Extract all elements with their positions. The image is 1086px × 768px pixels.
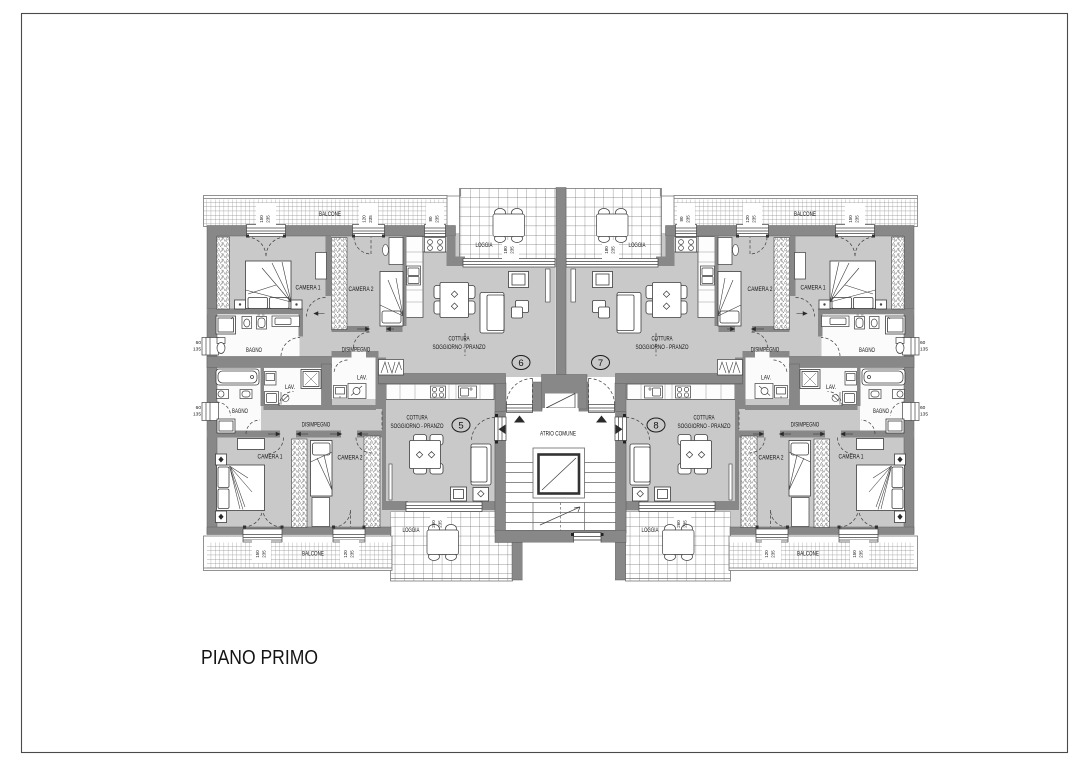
svg-text:COTTURA: COTTURA — [694, 415, 716, 422]
svg-text:CAMERA 1: CAMERA 1 — [258, 454, 283, 461]
svg-text:COTTURA: COTTURA — [407, 415, 429, 422]
svg-text:180: 180 — [503, 246, 509, 254]
svg-text:BAGNO: BAGNO — [873, 408, 889, 415]
svg-text:COTTURA: COTTURA — [652, 336, 674, 343]
svg-text:7: 7 — [598, 358, 603, 369]
svg-text:BAGNO: BAGNO — [246, 347, 262, 354]
svg-text:150: 150 — [259, 215, 265, 223]
svg-text:LOGGIA: LOGGIA — [403, 527, 421, 534]
svg-text:120: 120 — [343, 550, 349, 558]
svg-text:LOGGIA: LOGGIA — [642, 527, 660, 534]
svg-text:150: 150 — [848, 215, 854, 223]
svg-text:BAGNO: BAGNO — [232, 408, 248, 415]
svg-text:60: 60 — [196, 405, 202, 411]
svg-text:235: 235 — [266, 215, 272, 223]
svg-text:135: 135 — [920, 412, 928, 418]
svg-text:LAV.: LAV. — [761, 375, 771, 382]
svg-text:260: 260 — [431, 520, 437, 528]
svg-text:80: 80 — [679, 216, 685, 221]
svg-text:235: 235 — [350, 550, 356, 558]
svg-text:CAMERA 1: CAMERA 1 — [296, 285, 321, 292]
svg-text:DISIMPEGNO: DISIMPEGNO — [302, 422, 331, 429]
svg-text:235: 235 — [368, 215, 374, 223]
svg-text:5: 5 — [458, 421, 463, 432]
svg-text:8: 8 — [653, 421, 658, 432]
svg-text:150: 150 — [852, 550, 858, 558]
svg-text:DISIMPEGNO: DISIMPEGNO — [342, 347, 371, 354]
svg-text:SOGGIORNO - PRANZO: SOGGIORNO - PRANZO — [433, 344, 486, 351]
svg-text:120: 120 — [764, 550, 770, 558]
svg-text:LOGGIA: LOGGIA — [629, 242, 647, 249]
svg-text:150: 150 — [255, 550, 261, 558]
svg-text:BALCONE: BALCONE — [302, 551, 324, 558]
svg-text:6: 6 — [518, 358, 523, 369]
svg-text:BALCONE: BALCONE — [319, 211, 341, 218]
svg-text:120: 120 — [362, 215, 368, 223]
svg-text:COTTURA: COTTURA — [449, 336, 471, 343]
svg-text:235: 235 — [859, 550, 865, 558]
svg-text:CAMERA 1: CAMERA 1 — [801, 285, 826, 292]
svg-text:235: 235 — [510, 246, 516, 254]
svg-text:235: 235 — [771, 550, 777, 558]
svg-text:BALCONE: BALCONE — [794, 211, 816, 218]
svg-text:LAV.: LAV. — [357, 375, 367, 382]
svg-text:60: 60 — [920, 340, 926, 346]
svg-text:LOGGIA: LOGGIA — [476, 242, 494, 249]
svg-text:120: 120 — [745, 215, 751, 223]
svg-text:60: 60 — [920, 405, 926, 411]
svg-text:SOGGIORNO - PRANZO: SOGGIORNO - PRANZO — [391, 423, 444, 430]
svg-text:235: 235 — [611, 246, 617, 254]
svg-text:235: 235 — [752, 215, 758, 223]
svg-text:235: 235 — [438, 520, 444, 528]
svg-text:135: 135 — [193, 412, 201, 418]
svg-text:135: 135 — [920, 347, 928, 353]
svg-text:PIANO PRIMO: PIANO PRIMO — [201, 647, 318, 669]
svg-text:BAGNO: BAGNO — [859, 347, 875, 354]
svg-text:BALCONE: BALCONE — [797, 551, 819, 558]
svg-text:235: 235 — [683, 520, 689, 528]
svg-text:135: 135 — [193, 347, 201, 353]
svg-text:CAMERA 2: CAMERA 2 — [748, 286, 773, 293]
svg-text:LAV.: LAV. — [285, 384, 295, 391]
svg-text:235: 235 — [855, 215, 861, 223]
svg-text:235: 235 — [435, 215, 441, 223]
svg-text:60: 60 — [196, 340, 202, 346]
svg-text:260: 260 — [676, 520, 682, 528]
svg-text:CAMERA 2: CAMERA 2 — [759, 455, 784, 462]
svg-text:ATRIO COMUNE: ATRIO COMUNE — [540, 431, 576, 438]
svg-text:SOGGIORNO - PRANZO: SOGGIORNO - PRANZO — [678, 423, 731, 430]
svg-text:SOGGIORNO - PRANZO: SOGGIORNO - PRANZO — [636, 344, 689, 351]
svg-text:180: 180 — [604, 246, 610, 254]
svg-text:CAMERA 1: CAMERA 1 — [839, 454, 864, 461]
svg-text:80: 80 — [428, 216, 434, 221]
svg-text:DISIMPEGNO: DISIMPEGNO — [751, 347, 780, 354]
svg-text:CAMERA 2: CAMERA 2 — [349, 286, 374, 293]
svg-text:DISIMPEGNO: DISIMPEGNO — [791, 422, 820, 429]
svg-text:235: 235 — [686, 215, 692, 223]
svg-text:CAMERA 2: CAMERA 2 — [338, 455, 363, 462]
svg-text:LAV.: LAV. — [826, 384, 836, 391]
svg-text:235: 235 — [262, 550, 268, 558]
